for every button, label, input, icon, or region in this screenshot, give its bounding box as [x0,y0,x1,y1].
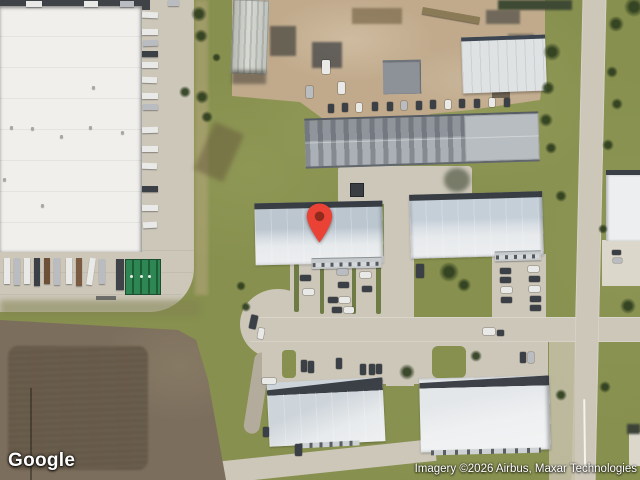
grass-median [320,268,324,314]
loading-dock-trailer [142,29,158,35]
hedge-dark [627,424,640,434]
hedge-dark [498,0,572,10]
loading-dock-trailer [34,258,40,286]
parked-car [529,286,540,292]
parked-car [339,297,350,303]
loading-dock-trailer [26,1,42,7]
tree [539,113,553,127]
roof-vent [89,126,92,129]
parked-car [530,296,541,302]
field-grass-edge [0,300,200,316]
parked-car [369,364,375,375]
grass-island [432,346,466,378]
equipment-clutter [352,8,402,24]
dock-truck [356,103,362,112]
dumpster-dot [140,275,143,278]
parked-truck [322,60,330,74]
dock-truck [489,98,495,107]
loading-dock-trailer [142,127,158,134]
rooftop-shed [350,183,364,197]
dock-truck [401,101,407,110]
dock-truck [459,99,465,108]
parked-car [336,358,342,369]
parked-van [416,264,424,278]
parked-car [520,352,526,363]
tree [624,0,640,17]
concrete-pad-right [602,240,640,286]
loading-dock-trailer [142,163,157,170]
roof-vent [92,86,95,89]
grass-island [282,350,296,378]
parked-car [500,268,511,274]
loading-dock-trailer [66,258,72,284]
driveway-bottom-right [549,342,575,480]
tree [555,190,567,202]
dock-truck [387,102,393,111]
building-mid-right-roof [409,191,544,259]
tree [212,53,221,62]
loading-dock-trailer [14,258,20,285]
parked-car [501,287,512,293]
tree [543,43,561,61]
parked-car [303,289,314,295]
shed-debris [232,70,266,84]
loading-dock-trailer [142,12,158,19]
parked-car [337,269,348,275]
car-on-road [295,444,302,456]
building-right-edge-roof [606,170,640,241]
dock-canopy [312,257,382,269]
tree [457,278,471,292]
roof-seams [409,197,544,259]
tree [541,81,555,95]
parked-car [530,305,541,311]
roof-vent [60,135,63,138]
google-logo[interactable]: Google [8,450,75,472]
dock-truck [416,101,422,110]
ribbed-shed-roof [231,0,270,75]
building-shadow-wedge [419,375,549,388]
tree [606,66,618,78]
tree [608,16,624,32]
loading-dock-trailer [142,51,158,57]
roof-vent [121,131,124,134]
grass-median [376,262,381,314]
parked-car [362,286,372,292]
building-bottom-left-roof [267,377,386,447]
loading-dock-trailer [99,259,105,284]
parked-car [612,250,621,255]
parked-car [528,266,539,272]
white-shed-roof [461,35,547,94]
equipment-clutter [486,10,520,24]
parked-car [344,307,354,313]
dock-doors [431,448,541,456]
roof-vent [10,126,13,129]
dark-trailer [116,259,124,290]
concrete-pad-right-edge [629,432,640,466]
tree [399,364,415,380]
loading-dock-trailer [142,186,158,192]
loading-dock-trailer [142,77,157,84]
parked-car [528,352,534,363]
roof-vent [3,178,6,181]
loading-dock-trailer [143,222,157,229]
dock-truck [430,100,436,109]
tree [470,350,482,362]
tree [599,381,611,393]
loading-dock-trailer [24,258,30,284]
parked-car [501,297,512,303]
building-bottom-right-roof [419,375,551,452]
loading-dock-trailer [142,205,158,211]
parked-car [360,272,371,278]
parked-car [301,360,307,372]
parked-car [338,282,349,288]
parked-car [308,361,314,373]
car-on-road [483,328,495,335]
parked-truck [338,82,345,94]
loading-dock-trailer [44,258,50,284]
parked-car [328,297,338,303]
roof-seams [267,389,385,447]
map-attribution: Imagery ©2026 Airbus, Maxar Technologies [415,463,637,475]
parked-car [613,258,622,263]
loading-dock-trailer [54,258,60,285]
equipment-clutter [270,26,296,56]
roof-vent [41,204,44,207]
tree [602,139,614,151]
dock-canopy [495,250,541,261]
loading-dock-trailer [143,40,158,47]
dock-doors [496,254,539,259]
tree [194,29,208,43]
dock-truck [372,102,378,111]
parked-car [262,378,276,384]
tree [545,142,557,154]
loading-dock-trailer [120,1,134,7]
pavement-debris [96,296,116,300]
parked-car [360,364,366,375]
tree [191,6,207,22]
dumpster-dot [148,275,151,278]
tree [195,90,209,104]
loading-dock-trailer [84,1,98,7]
car-on-road [497,330,504,336]
satellite-map[interactable]: Google Imagery ©2026 Airbus, Maxar Techn… [0,0,640,480]
road-paint-line [583,399,586,467]
parked-car [529,276,540,282]
long-warehouse-roof [304,111,539,168]
loading-dock-trailer [142,93,158,99]
dumpster-dot [130,275,133,278]
tree [179,86,191,98]
tree [611,98,623,110]
loading-dock-trailer [142,146,158,152]
dock-truck [328,104,334,113]
dock-doors [313,262,379,267]
roof-ribs [231,0,270,75]
tree [620,298,636,314]
grass-median [294,264,299,312]
tree [201,111,213,123]
parked-car [332,307,342,313]
parked-car [300,275,311,281]
loading-dock-trailer [4,258,10,284]
loading-dock-trailer [168,0,179,6]
parked-car [263,427,269,437]
warehouse-large-roof [0,6,142,252]
tree [241,302,251,312]
tree [439,262,459,282]
dumpster-green-block [125,259,161,295]
dock-truck [474,99,480,108]
loading-dock-trailer [142,62,158,68]
gray-shed-roof [383,60,422,95]
tree [598,224,608,234]
parked-truck [306,86,313,98]
parked-car [376,364,382,374]
parked-car [500,277,511,283]
dock-truck [504,98,510,107]
loading-dock-trailer [143,104,158,110]
tree [555,389,567,401]
map-marker-icon[interactable] [306,203,333,243]
loading-dock-trailer [76,258,82,286]
dock-truck [342,103,348,112]
roof-vent [31,127,34,130]
tree-shadow [444,168,470,192]
tree [236,281,246,291]
dock-truck [445,100,451,109]
